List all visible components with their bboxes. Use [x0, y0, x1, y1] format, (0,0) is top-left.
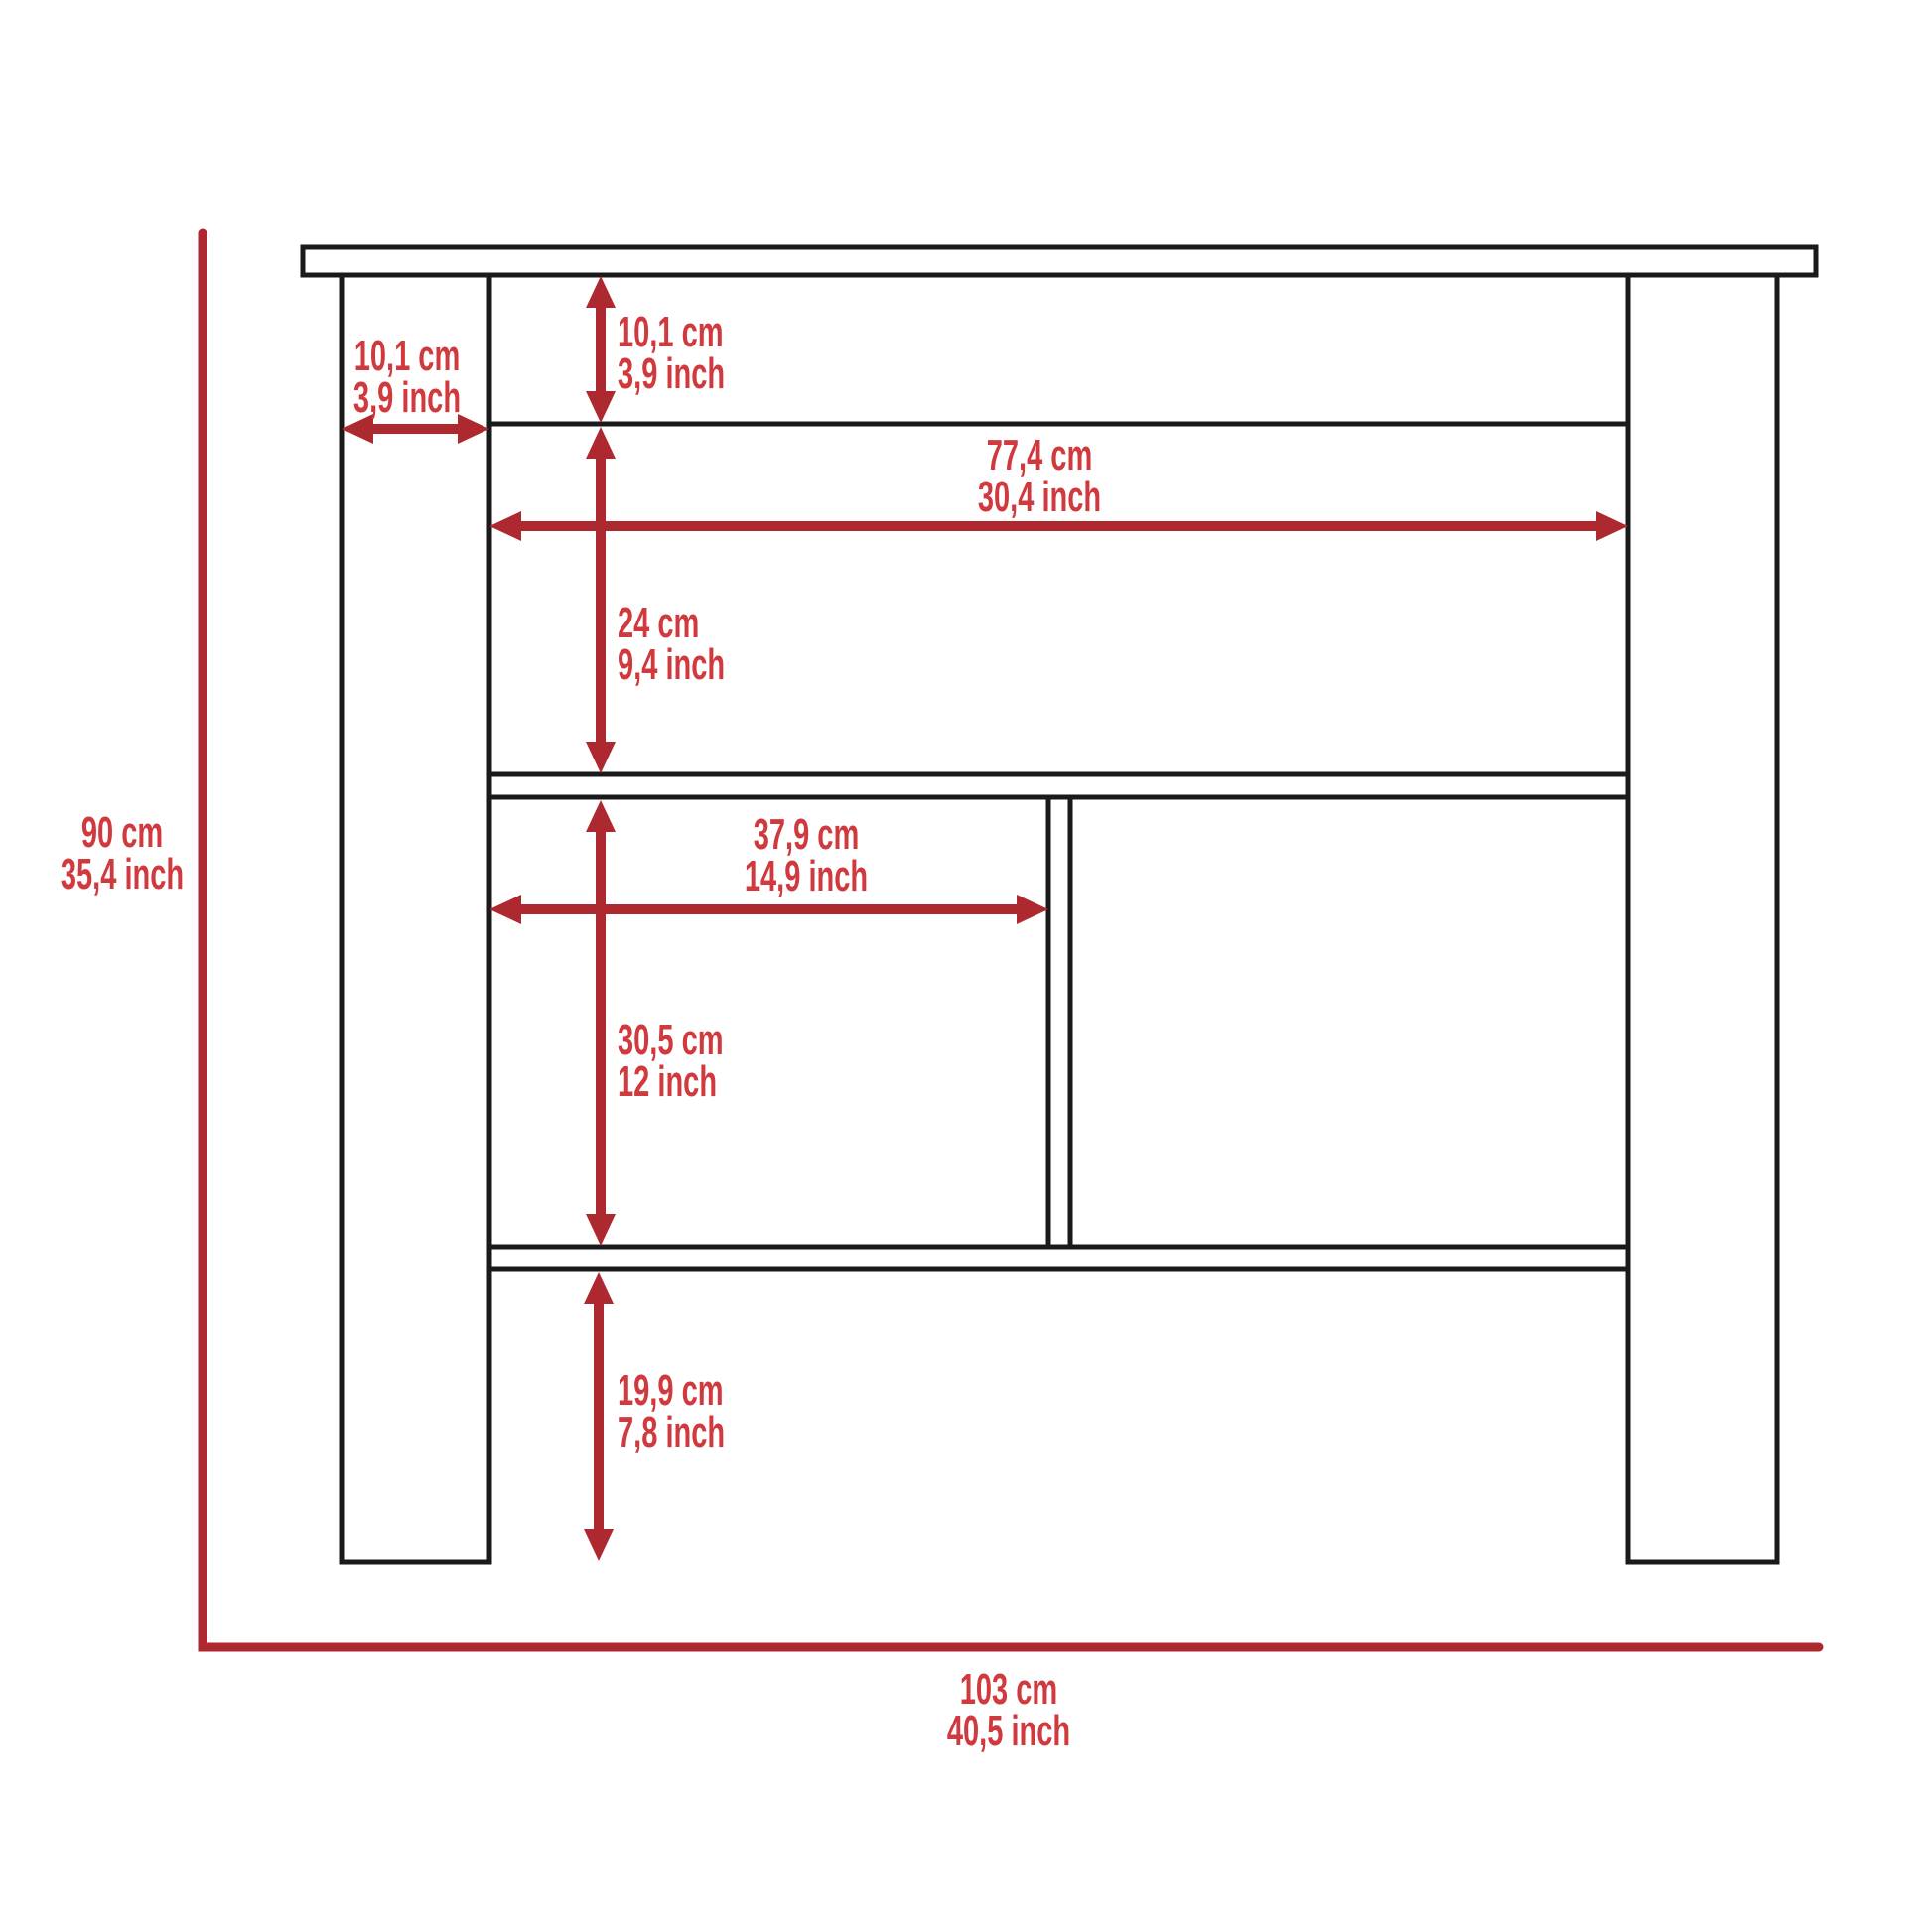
dimension-cm-text: 19,9 cm [618, 1370, 725, 1412]
dimension-cm-text: 37,9 cm [745, 814, 868, 856]
dimension-inch-text: 3,9 inch [618, 353, 725, 395]
dimension-inch-text: 14,9 inch [745, 856, 868, 897]
arrow-upper-height [586, 427, 616, 773]
dimension-cm-text: 77,4 cm [978, 435, 1101, 477]
label-interior-width: 77,4 cm 30,4 inch [978, 435, 1101, 518]
dimension-cm-text: 24 cm [618, 603, 725, 644]
dimension-inch-text: 3,9 inch [353, 377, 461, 419]
arrow-apron-height [586, 276, 616, 423]
dimension-diagram: 90 cm 35,4 inch 10,1 cm 3,9 inch 10,1 cm… [0, 0, 1932, 1932]
dimension-inch-text: 9,4 inch [618, 644, 725, 686]
middle-shelf [489, 774, 1628, 797]
tabletop [303, 247, 1816, 275]
label-leg-width: 10,1 cm 3,9 inch [353, 336, 461, 419]
center-divider [1048, 797, 1070, 1247]
dimension-cm-text: 10,1 cm [353, 336, 461, 377]
dimension-inch-text: 7,8 inch [618, 1412, 725, 1453]
arrow-middle-height [586, 800, 616, 1246]
label-apron-height: 10,1 cm 3,9 inch [618, 312, 725, 395]
label-overall-width: 103 cm 40,5 inch [947, 1669, 1070, 1752]
label-middle-compartment-height: 30,5 cm 12 inch [618, 1020, 724, 1103]
label-left-compartment-width: 37,9 cm 14,9 inch [745, 814, 868, 897]
label-overall-height: 90 cm 35,4 inch [61, 812, 184, 896]
dimension-inch-text: 30,4 inch [978, 477, 1101, 518]
diagram-graphics [0, 0, 1932, 1932]
bottom-shelf [489, 1247, 1628, 1269]
dimension-cm-text: 90 cm [61, 812, 184, 854]
dimension-inch-text: 35,4 inch [61, 854, 184, 896]
dimension-inch-text: 12 inch [618, 1061, 724, 1103]
label-bottom-clearance: 19,9 cm 7,8 inch [618, 1370, 725, 1453]
left-leg [342, 275, 489, 1562]
right-leg [1628, 275, 1777, 1562]
arrow-bottom-clearance [584, 1272, 614, 1561]
label-upper-compartment-height: 24 cm 9,4 inch [618, 603, 725, 686]
dimension-cm-text: 10,1 cm [618, 312, 725, 353]
dimension-cm-text: 103 cm [947, 1669, 1070, 1711]
dimension-inch-text: 40,5 inch [947, 1711, 1070, 1752]
dimension-cm-text: 30,5 cm [618, 1020, 724, 1061]
